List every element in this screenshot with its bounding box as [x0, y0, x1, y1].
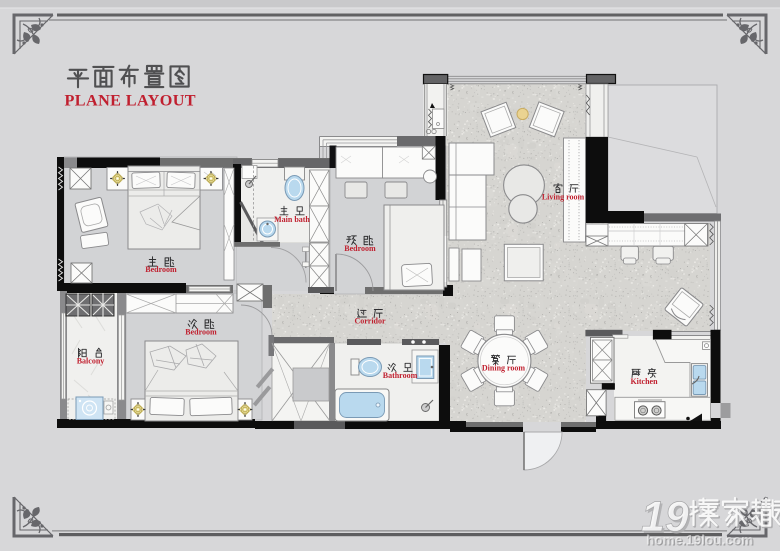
- svg-text:PLANE LAYOUT: PLANE LAYOUT: [65, 92, 196, 110]
- svg-text:Bedroom: Bedroom: [344, 244, 376, 253]
- svg-text:Main bath: Main bath: [274, 215, 310, 224]
- svg-text:Bedroom: Bedroom: [185, 328, 217, 337]
- svg-text:Dining room: Dining room: [482, 364, 526, 373]
- svg-text:Balcony: Balcony: [77, 357, 105, 366]
- svg-text:Living room: Living room: [542, 193, 585, 202]
- svg-text:Bathroom: Bathroom: [383, 371, 418, 380]
- svg-text:Kitchen: Kitchen: [630, 377, 658, 386]
- svg-text:home.19lou.com: home.19lou.com: [646, 533, 753, 548]
- svg-text:Corridor: Corridor: [354, 317, 386, 326]
- svg-text:Bedroom: Bedroom: [145, 265, 177, 274]
